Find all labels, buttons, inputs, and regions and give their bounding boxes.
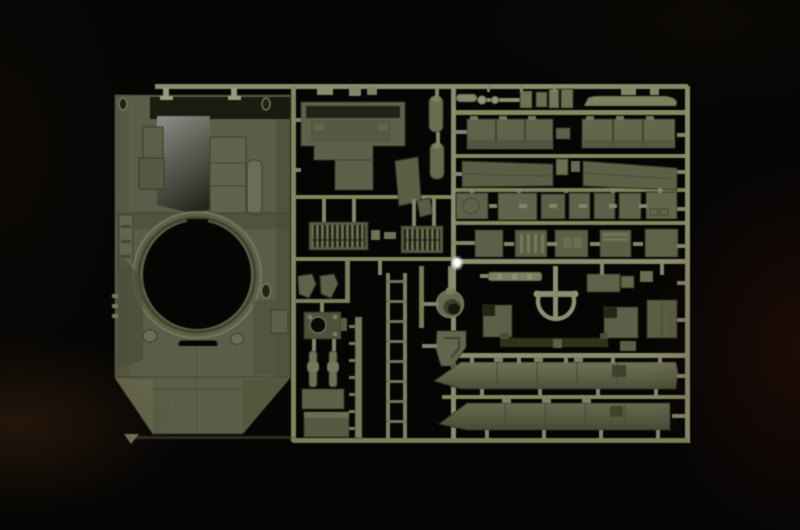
wing-bracket-b: [320, 274, 338, 298]
hatch-panel-1: [456, 193, 488, 219]
turret-lift-knob-right: [231, 334, 244, 345]
plank-strip-dots: [497, 274, 502, 279]
stowage-box-lid: [621, 276, 634, 288]
ladder-rungs: [386, 360, 407, 363]
hatch-row-top-gates: [517, 188, 521, 193]
sprue-runner-h6: [456, 259, 685, 264]
small-part-top-2: [349, 86, 361, 96]
vent-panel-5: [645, 229, 678, 257]
panel-row2-left-shade: [467, 140, 553, 149]
sprue-runner-h3: [456, 154, 685, 158]
sprue-photo: [0, 0, 800, 530]
fender-upper-tabs: [494, 357, 503, 362]
plate-part-b-face: [304, 412, 349, 418]
small-clip-1: [621, 88, 636, 95]
right-edge-gates: [677, 244, 686, 248]
ladder-gate-top: [378, 259, 382, 275]
small-part-top-1: [317, 88, 333, 95]
grille-a-gate-1: [322, 199, 326, 222]
fender-lower-tabs: [582, 398, 591, 403]
gun-barrel-bar-block: [553, 339, 562, 348]
bar-side-part: [620, 341, 636, 351]
hatch-panel-2: [498, 193, 537, 220]
fender-part-lower: [439, 403, 670, 430]
turret-ring-top-notch: [187, 219, 208, 228]
right-edge-gate-low2: [672, 414, 686, 418]
travel-lock-crossbar: [536, 291, 576, 297]
sprue-runner-h7: [451, 353, 688, 358]
tow-rod-disc-2: [491, 96, 499, 104]
notched-panel-recess: [604, 307, 617, 318]
plank-strip-dots: [527, 274, 532, 279]
fender1-top-gates: [658, 357, 662, 363]
vent-panel-3-latch-1: [564, 238, 571, 247]
sprue-runner-bottom: [293, 438, 688, 443]
mid-row-gates: [660, 263, 664, 275]
grille-a-gate-2: [352, 199, 356, 222]
engine-deck-hinge-left: [314, 123, 324, 131]
fender2-bottom-gates: [599, 430, 603, 438]
tow-rod-disc-1: [478, 96, 487, 105]
rail-part-stubs: [349, 376, 355, 379]
vent-row-stubs: [633, 242, 643, 246]
vent-panel-4-stripes: [603, 238, 628, 241]
fender-part-upper: [434, 362, 678, 389]
vent-row-stubs: [504, 242, 514, 246]
shock-gate-a: [312, 339, 316, 351]
shock-gate-b: [332, 339, 336, 351]
fender1-bottom-gates: [538, 389, 542, 396]
hatch-ring-hole: [310, 317, 326, 333]
fender1-top-gates: [611, 357, 615, 363]
gun-barrel-bar-tab-right: [600, 333, 608, 339]
small-block-2: [536, 92, 547, 107]
rail-part-stubs: [349, 342, 355, 345]
hatch-row-stubs: [519, 204, 527, 208]
turret-edge-ticks: [112, 304, 118, 308]
fender-upper-tabs: [574, 357, 583, 362]
hatch-ring-stud-1: [308, 315, 312, 319]
small-block-1: [520, 91, 532, 108]
fender2-bottom-gates: [656, 430, 660, 438]
sprue-runner-bottom-dim: [135, 436, 295, 439]
turret-pilaster-ribs: [121, 240, 131, 243]
rail-part-stubs: [349, 325, 355, 328]
ladder-rungs: [386, 400, 407, 403]
turret-hatch-door: [210, 137, 246, 213]
fender1-top-gates: [470, 357, 474, 363]
hatch-row-stubs: [549, 204, 557, 208]
row1-gates: [520, 84, 523, 92]
vent-panel-4-stripes: [603, 233, 628, 236]
right-edge-gate-low1: [677, 374, 686, 378]
fender1-top-gates: [517, 357, 521, 363]
panel-row2-right-tabs: [586, 116, 594, 120]
vent-panel-3: [555, 230, 588, 257]
turret-edge-ticks: [112, 294, 118, 298]
vent-panel-2-slats: [520, 234, 523, 253]
mid-row-gates: [600, 263, 604, 275]
panel-row2-left-tabs: [470, 116, 478, 120]
shock-absorber-b-bulge: [327, 362, 339, 372]
row1-gates: [553, 84, 556, 92]
grille-b-gate-1: [412, 199, 416, 226]
fuel-cylinder-gate-mid: [436, 132, 440, 144]
ladder-rail-left: [386, 273, 390, 438]
stowage-box-part: [587, 274, 620, 292]
cupola-gate: [448, 266, 452, 290]
hatch-row-top-gates: [564, 188, 568, 193]
hatch-row-stubs: [579, 204, 587, 208]
radiator-grille-b-slats: [404, 229, 440, 250]
fender1-bottom-gates: [480, 389, 484, 396]
panel-row2-left-tabs: [499, 116, 507, 120]
grille-connector-1: [371, 230, 380, 240]
row2-connector-part: [556, 128, 570, 139]
trapezoid-plate-part: [395, 157, 421, 206]
turret-step-bracket: [271, 310, 288, 333]
vent-row-stubs: [590, 242, 600, 246]
sprue-runner-h2: [456, 110, 685, 115]
hatch-row-stubs: [489, 204, 497, 208]
ladder-rungs: [386, 340, 407, 343]
stowage-clip: [640, 271, 653, 282]
fender-lower-tabs: [542, 398, 551, 403]
fender1-top-gates: [564, 357, 568, 363]
engine-deck-gate-left2: [294, 168, 301, 172]
row3-clip-part: [571, 161, 580, 172]
turret-block-left-b: [139, 158, 164, 189]
notch-box-recess: [483, 305, 495, 316]
sprue-runner-mid-h3: [293, 299, 350, 303]
vent-panel-1: [475, 230, 503, 257]
hatch-ring-stud-2: [333, 315, 337, 319]
turret-oval-hole-2: [262, 98, 270, 110]
ladder-rungs: [386, 380, 407, 383]
vent-panel-3-latch-2: [574, 238, 581, 247]
panel-row2-left-tabs: [528, 116, 536, 120]
rail-part-stubs: [349, 410, 355, 413]
right-edge-gates: [677, 133, 686, 137]
ladder-rail-right: [403, 273, 407, 438]
gun-barrel-bar-tab-left: [500, 333, 509, 339]
bracket-part-small: [417, 198, 432, 217]
rail-part-stubs: [349, 359, 355, 362]
fender-upper-notch: [612, 365, 626, 377]
fuel-cylinder-gate-top: [435, 88, 439, 97]
hatch-row-top-gates: [470, 188, 474, 193]
center-runner-gate-row3: [451, 172, 462, 176]
fender-lower-notch: [610, 406, 623, 417]
panel-row2-right-tabs: [616, 116, 624, 120]
hatch-row-top-gates: [611, 188, 615, 193]
right-edge-gates: [677, 170, 686, 174]
panel-row2-right-tabs: [646, 116, 654, 120]
ladder-rungs: [386, 280, 407, 283]
hatch-row-stubs: [609, 204, 617, 208]
hatch-panel-6: [619, 193, 641, 219]
right-edge-gates: [677, 281, 686, 285]
sprue-runner-mid-v1: [345, 260, 350, 302]
vent-panel-2-slats: [527, 234, 530, 253]
gusset-gate-1: [424, 302, 438, 306]
hatch-row-stubs: [639, 204, 647, 208]
fender1-bottom-gates: [596, 389, 600, 396]
rail-part-stubs: [349, 427, 355, 430]
sprue-runner-h5: [456, 221, 685, 225]
fender2-bottom-gates: [485, 430, 489, 438]
sprue-runner-mid-h2: [296, 257, 451, 261]
hatch-row-top-gates: [658, 188, 662, 193]
hatch-ring-stud-3: [333, 332, 337, 336]
turret-block-left-a: [143, 127, 163, 160]
cupola-dome-shadow: [448, 304, 460, 315]
rail-part: [355, 317, 362, 438]
plank-gate-left: [480, 274, 488, 278]
sprue-runner-h8: [442, 395, 688, 399]
turret-pilaster-ribs: [121, 225, 131, 228]
small-part-top-3: [367, 87, 377, 95]
hatch-ring-gate: [320, 303, 324, 312]
fender1-bottom-gates: [654, 389, 658, 396]
plate-part-a: [302, 389, 344, 409]
rail-part-stubs: [349, 393, 355, 396]
turret-lift-knob-left: [143, 330, 157, 342]
vent-panel-2-slats: [534, 234, 537, 253]
step-gusset-part: [436, 331, 466, 366]
sprue-runner-left: [291, 86, 296, 442]
sprue-runner-right-edge: [685, 86, 690, 443]
turret-ring-opening: [143, 221, 251, 329]
grille-connector-2: [384, 232, 396, 239]
small-clip-2: [650, 89, 659, 95]
wing-bracket-a: [298, 274, 316, 298]
radiator-grille-a-slats: [312, 225, 365, 247]
vent-row-stubs: [547, 242, 557, 246]
photo-viewport: [0, 0, 800, 530]
turret-sprue-gate-1b: [160, 96, 173, 100]
engine-deck-hinge-right: [378, 123, 388, 131]
turret-sprue-gate-2b: [228, 96, 241, 100]
ladder-rungs: [386, 320, 407, 323]
panel-row2-right-shade: [582, 140, 675, 148]
turret-right-edge-shade: [276, 95, 290, 378]
barrel-strip-part: [584, 96, 677, 106]
turret-oval-hole-3: [262, 284, 271, 298]
row1-gates: [487, 84, 490, 92]
row3-bracket-part: [556, 159, 568, 175]
gusset-gate-2: [422, 344, 437, 348]
ladder-rungs: [386, 300, 407, 303]
tow-lozenge-part: [456, 94, 477, 102]
vent-panel-2-slats: [541, 234, 544, 253]
engine-deck-gate-left: [294, 118, 301, 122]
paint-highlight-core: [454, 259, 460, 266]
fender2-bottom-gates: [542, 430, 546, 438]
fender-upper-tabs: [534, 357, 543, 362]
plank-strip-dots: [512, 274, 517, 279]
turret-periscope-column: [247, 160, 262, 215]
center-runner-gate-row2: [451, 130, 467, 134]
grille-b-gate-2: [432, 199, 436, 226]
turret-oval-hole-1: [119, 98, 127, 110]
turret-edge-ticks: [112, 314, 118, 318]
ladder-rungs: [386, 420, 407, 423]
right-edge-gates: [677, 318, 686, 322]
sprue-runner-short-v: [419, 266, 424, 328]
shock-absorber-a-bulge: [307, 362, 319, 372]
small-block-4: [561, 89, 573, 108]
fender-lower-tabs: [502, 398, 511, 403]
sprue-parts-group: [112, 84, 690, 444]
vent-row-stub-left: [451, 241, 475, 245]
hatch-ring-side-tab: [341, 318, 347, 331]
right-edge-gates: [677, 207, 686, 211]
engine-deck-recess: [306, 106, 400, 118]
